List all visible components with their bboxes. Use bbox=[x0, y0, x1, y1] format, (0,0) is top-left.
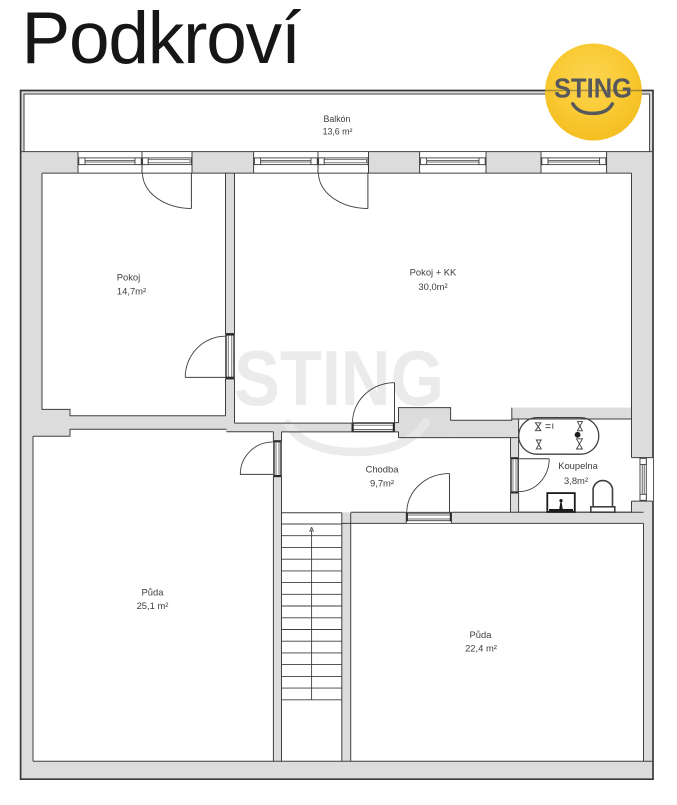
svg-text:Koupelna: Koupelna bbox=[558, 460, 598, 471]
svg-text:Pokoj: Pokoj bbox=[117, 272, 140, 283]
svg-text:9,7m²: 9,7m² bbox=[370, 477, 394, 488]
svg-text:22,4 m²: 22,4 m² bbox=[465, 643, 497, 654]
svg-text:Půda: Půda bbox=[142, 587, 165, 598]
svg-text:Pokoj + KK: Pokoj + KK bbox=[410, 267, 457, 278]
svg-text:25,1 m²: 25,1 m² bbox=[137, 600, 169, 611]
svg-text:Podkroví: Podkroví bbox=[22, 0, 301, 79]
svg-text:3,8m²: 3,8m² bbox=[564, 475, 588, 486]
svg-text:STING: STING bbox=[554, 73, 632, 104]
svg-text:13,6 m²: 13,6 m² bbox=[323, 127, 353, 137]
svg-text:30,0m²: 30,0m² bbox=[418, 281, 447, 292]
svg-text:Balkón: Balkón bbox=[324, 114, 351, 124]
svg-text:14,7m²: 14,7m² bbox=[117, 286, 146, 297]
svg-text:Půda: Půda bbox=[470, 629, 493, 640]
svg-text:STING: STING bbox=[234, 336, 444, 422]
svg-text:Chodba: Chodba bbox=[366, 464, 400, 475]
